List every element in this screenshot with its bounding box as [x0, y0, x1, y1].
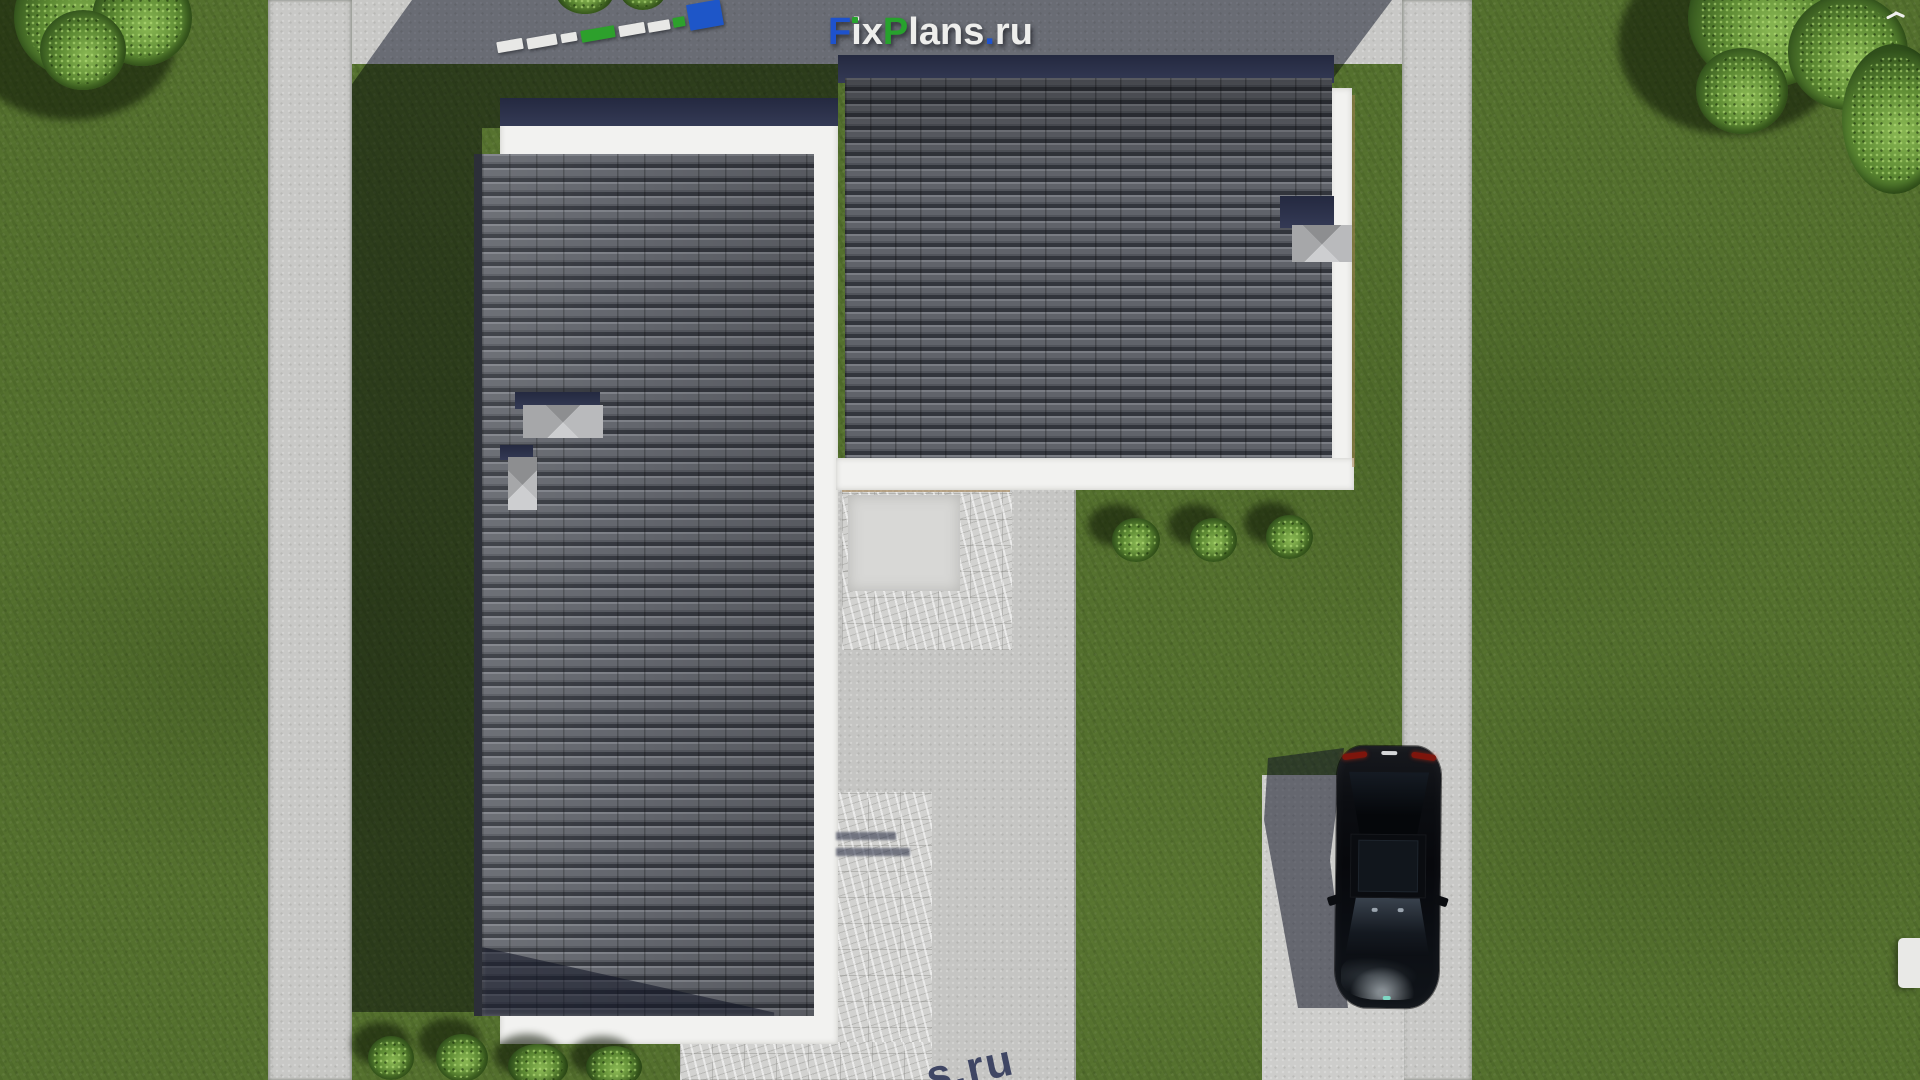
car-sunroof: [1358, 840, 1419, 893]
right-wing-fascia-bottom: [836, 458, 1354, 490]
watermark-letter-fragment: [618, 22, 646, 37]
bush-bottom-3: [508, 1044, 568, 1080]
right-wing-tiles-shading: [845, 78, 1332, 458]
left-wing-ridge-edge: [474, 154, 482, 1016]
marble-patio-smooth: [848, 495, 960, 591]
right-wing-trim-line: [1352, 95, 1355, 467]
car-rear-trim: [1381, 751, 1397, 755]
watermark-letter-fragment: [647, 19, 670, 33]
car-windshield: [1345, 898, 1430, 957]
left-wing-roof: [474, 96, 838, 1044]
right-wing-roof: [836, 50, 1358, 492]
white-bin: [1898, 938, 1920, 988]
right-wing-fascia-side: [1330, 88, 1352, 464]
bush-row-3: [1266, 515, 1313, 559]
brand-letter: a: [919, 13, 940, 51]
car-windshield-glints: [1372, 908, 1378, 912]
brand-letter-dot: [852, 17, 858, 23]
bush-bottom-2: [436, 1034, 488, 1080]
brand-letter: n: [940, 13, 963, 51]
brand-letter: i: [851, 13, 862, 51]
brand-letter: l: [908, 13, 919, 51]
brand-letter: P: [883, 13, 908, 51]
watermark-letter-fragment: [526, 33, 557, 49]
tree-top-right-d: [1696, 48, 1788, 134]
skylight-small: [508, 457, 537, 510]
watermark-letter-fragment: [580, 25, 616, 43]
brand-logo: FixPlans.ru: [828, 13, 1033, 51]
bush-row-1: [1112, 518, 1160, 562]
watermark-fragment-top-left: [0, 0, 760, 70]
sidewalk-left: [268, 0, 352, 1080]
left-wing-tiles-shading: [482, 154, 814, 1016]
skylight-large: [523, 405, 603, 438]
watermark-letter-fragment: [672, 16, 686, 28]
brand-letter: u: [1010, 13, 1033, 51]
watermark-letter-fragment: [686, 0, 724, 31]
bush-row-2: [1190, 518, 1237, 562]
bush-bottom-1: [368, 1036, 414, 1080]
brand-letter: .: [984, 13, 995, 51]
car-hood-highlight: [1341, 952, 1433, 1001]
brand-letter: F: [828, 13, 851, 51]
car-rear-window: [1348, 772, 1429, 835]
black-car: [1335, 745, 1442, 1008]
brand-letter: x: [862, 13, 883, 51]
watermark-letter-fragment: [496, 38, 524, 53]
left-wing-eave-shadow: [500, 98, 838, 126]
garden-step-1: [836, 832, 896, 840]
chimney-shadow: [1280, 196, 1334, 228]
bird-icon: [1886, 8, 1906, 22]
marble-walkway-bottom: [680, 1042, 932, 1080]
car-badge-teal: [1383, 996, 1391, 1000]
brand-letter: r: [995, 13, 1010, 51]
chimney-cap: [1292, 225, 1352, 262]
bush-bottom-4: [586, 1046, 642, 1080]
garden-step-2: [836, 848, 910, 856]
brand-letter: s: [963, 13, 984, 51]
watermark-letter-fragment: [560, 32, 577, 44]
aerial-render: FixPlans.ru s.ru: [0, 0, 1920, 1080]
